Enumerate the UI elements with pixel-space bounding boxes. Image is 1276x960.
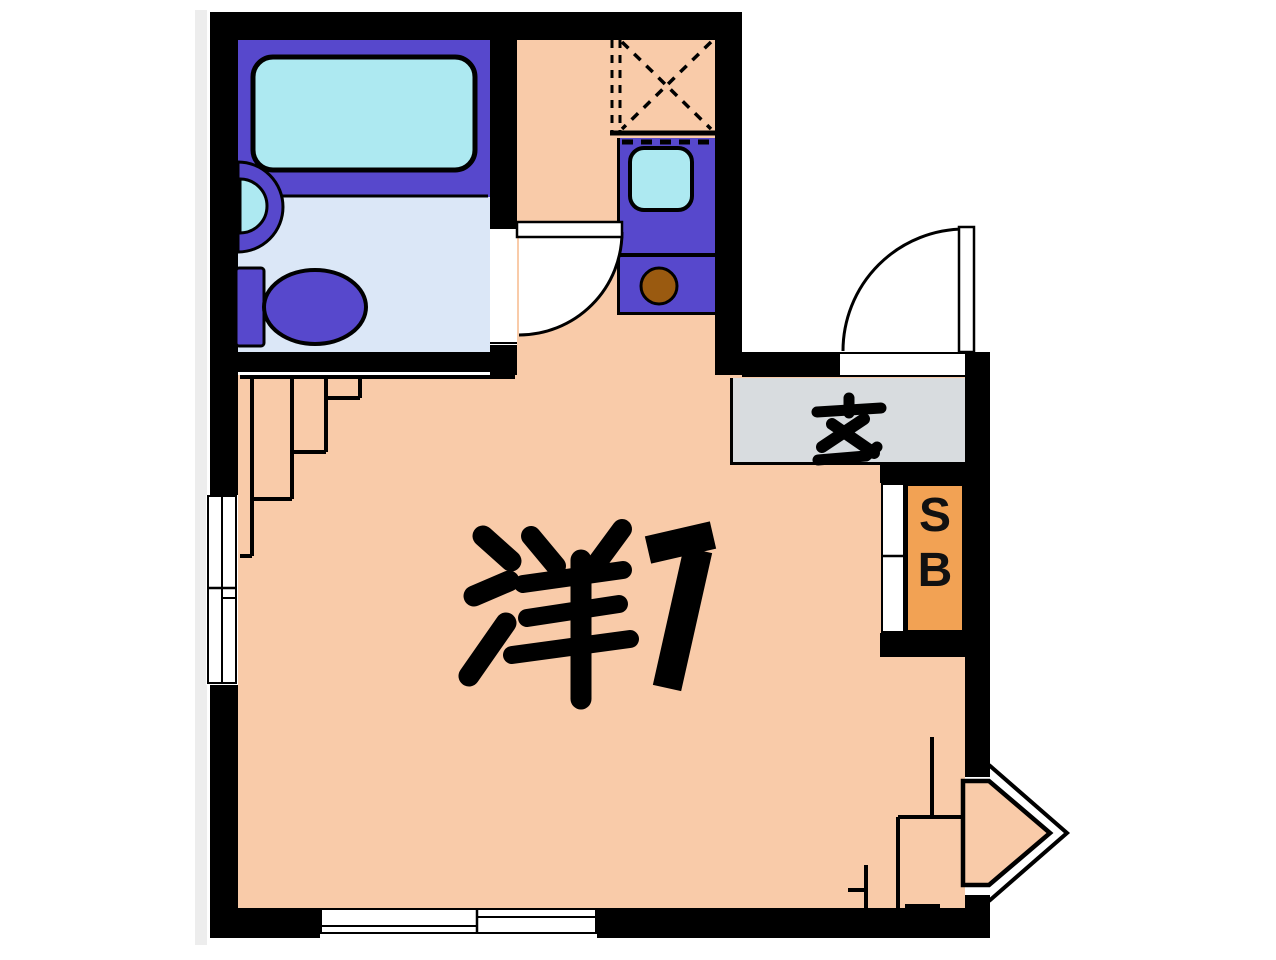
wall-shoebox-bottom <box>880 633 965 657</box>
left-window <box>206 495 238 685</box>
bath-area-floor <box>238 40 490 197</box>
wall-genkan-bottom <box>880 463 965 483</box>
shoebox-door <box>881 483 905 633</box>
entrance-door-leaf <box>959 227 974 352</box>
entrance-door <box>843 227 974 352</box>
shoebox-label: S B <box>905 488 965 598</box>
toilet-area-floor <box>238 197 490 352</box>
kitchen-counter <box>617 138 715 315</box>
entrance-doorway <box>840 352 965 377</box>
shoebox-label-s: S <box>905 488 965 543</box>
page-edge-strip <box>195 10 207 945</box>
wall-kitchen-right <box>715 12 742 375</box>
wall-genkan-top <box>742 352 840 377</box>
wall-bottom-left <box>210 908 320 938</box>
genkan-area <box>730 378 965 465</box>
bottom-window <box>320 908 597 934</box>
wall-top <box>210 12 742 40</box>
bay-window <box>963 765 1067 901</box>
bathroom-doorway <box>490 227 517 345</box>
wall-bottom-right <box>597 908 990 938</box>
wall-left-lower <box>210 685 238 910</box>
wall-left-upper <box>210 12 238 495</box>
wall-bath-bottom <box>210 352 517 372</box>
floor-plan: S B <box>0 0 1276 960</box>
shoebox-label-b: B <box>905 543 965 598</box>
wall-bath-right-upper <box>490 12 517 227</box>
wall-right-upper <box>965 352 990 777</box>
